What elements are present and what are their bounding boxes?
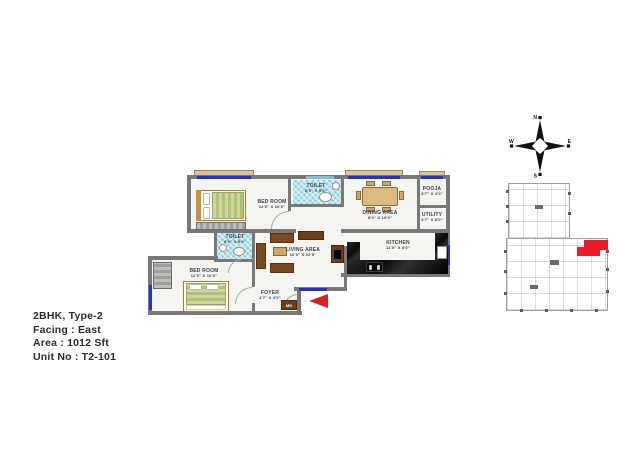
wall-living-right-lower: [344, 273, 347, 291]
window-living-bottom: [299, 288, 327, 291]
chair-icon: [366, 181, 375, 186]
room-label-kitchen: KITCHEN 11'0" X 8'0": [368, 240, 428, 251]
room-label-bedroom1: BED ROOM 12'0" X 10'0": [240, 199, 304, 210]
sofa-icon: [270, 263, 294, 273]
key-plan-tick: [606, 290, 609, 293]
wall-dining-bottom: [341, 229, 450, 233]
room-label-bedroom2: BED ROOM 12'0" X 10'0": [174, 268, 234, 279]
key-plan-tick: [506, 205, 509, 208]
wall-left-upper: [187, 175, 191, 233]
room-label-living: LIVING AREA 16'0" X 12'0": [273, 247, 333, 258]
entry-arrow-icon: [309, 294, 328, 308]
compass-s-label: S: [534, 174, 538, 179]
room-label-pooja: POOJA 3'7" X 4'0": [417, 186, 447, 197]
window-bedroom2: [149, 285, 152, 310]
bed-headboard: [196, 190, 201, 221]
pillow-icon: [206, 284, 219, 290]
sofa-icon: [270, 233, 294, 243]
room-label-toilet2: TOILET 8'0" X 5'0": [216, 234, 254, 245]
key-plan-tick: [506, 220, 509, 223]
chair-icon: [382, 181, 391, 186]
window-bedroom1: [197, 176, 251, 179]
key-plan: [500, 180, 615, 315]
compass-w-label: W: [509, 139, 514, 145]
key-plan-tick: [606, 268, 609, 271]
unit-no-text: Unit No : T2-101: [33, 351, 116, 365]
sink-icon: [437, 246, 447, 259]
wall-bedroom2-foyer-a: [252, 259, 255, 287]
bed-foot-sheet: [186, 305, 226, 310]
stair-core: [530, 285, 538, 289]
main-door-text: MD: [282, 303, 296, 308]
unit-type-text: 2BHK, Type-2: [33, 310, 116, 324]
wall-bedroom2-foyer-b: [252, 303, 255, 314]
wardrobe-icon: [196, 222, 246, 230]
window-pooja: [421, 176, 443, 179]
pillow-icon: [203, 193, 210, 205]
key-plan-tick: [504, 292, 507, 295]
highlighted-unit: [577, 247, 600, 256]
area-text: Area : 1012 Sft: [33, 337, 116, 351]
chair-icon: [356, 191, 361, 200]
window-toilet1: [306, 176, 334, 179]
room-label-toilet1: TOILET 8'0" X 5'0": [291, 183, 341, 194]
window-dining: [348, 176, 400, 179]
chair-icon: [399, 191, 404, 200]
key-plan-tick: [570, 309, 573, 312]
sofa-icon: [256, 243, 266, 269]
key-plan-tick: [545, 309, 548, 312]
wall-right-upper: [446, 175, 450, 233]
room-label-utility: UTILITY 3'7" X 8'0": [417, 212, 447, 223]
pillow-icon: [189, 284, 202, 290]
room-label-dining: DINING AREA 8'0" X 10'0": [350, 210, 410, 221]
key-plan-tick: [506, 190, 509, 193]
stove-icon: [366, 262, 383, 272]
facing-text: Facing : East: [33, 324, 116, 338]
stair-core: [535, 205, 543, 209]
key-plan-tick: [606, 250, 609, 253]
kitchen-counter: [347, 260, 448, 274]
wc-icon: [233, 247, 245, 256]
dining-table-icon: [362, 187, 398, 206]
key-plan-tick: [504, 270, 507, 273]
key-plan-tick: [568, 192, 571, 195]
washbasin-icon: [219, 244, 227, 252]
pillow-icon: [203, 207, 210, 219]
sideboard-icon: [298, 231, 324, 240]
wardrobe-icon: [153, 262, 172, 289]
key-plan-tick: [504, 250, 507, 253]
key-plan-tick: [595, 309, 598, 312]
info-panel: 2BHK, Type-2 Facing : East Area : 1012 S…: [33, 310, 116, 364]
key-plan-tick: [568, 212, 571, 215]
compass-e-label: E: [568, 139, 572, 145]
wall-bedroom2-top: [148, 256, 218, 260]
key-plan-upper-tower: [508, 183, 570, 239]
wall-toilet1-dining: [341, 178, 344, 207]
main-door-label: MD: [281, 300, 297, 310]
compass-n-label: N: [533, 115, 537, 121]
key-plan-tick: [520, 309, 523, 312]
compass-rose-icon: N S E W: [508, 114, 572, 178]
wall-pooja-utility: [417, 205, 448, 208]
room-label-foyer: FOYER 4'7" X 4'0": [250, 290, 290, 301]
stair-core: [550, 260, 559, 265]
floor-plan-page: MD BED ROOM 12'0" X 10'0" TOILET 8'0" X …: [0, 0, 640, 450]
